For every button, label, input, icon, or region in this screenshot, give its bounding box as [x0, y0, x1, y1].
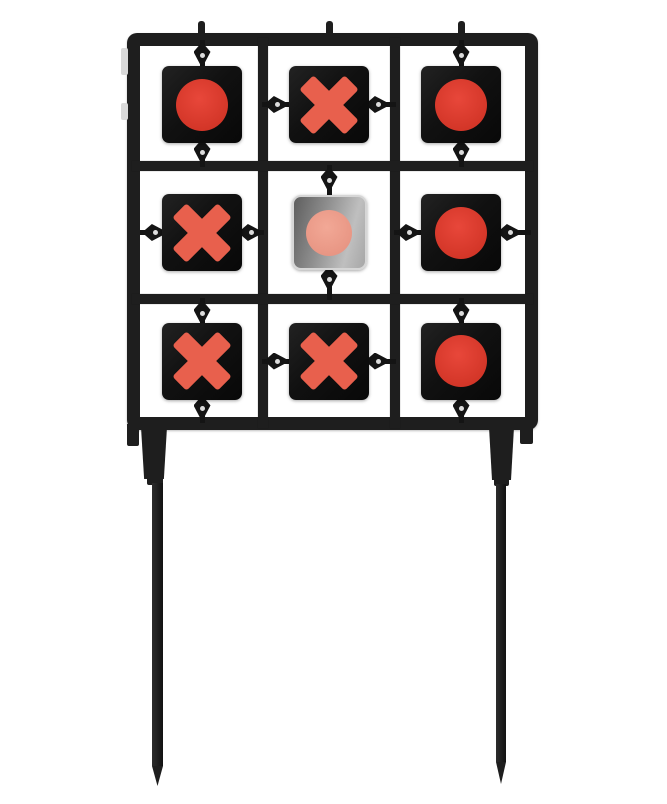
- grid-horizontal-bar-2: [132, 294, 533, 304]
- ground-stake-left: [152, 483, 163, 766]
- bracket-hole: [327, 277, 332, 282]
- mount-tab: [121, 103, 128, 120]
- bracket-hole: [275, 359, 280, 364]
- bracket-hole: [376, 102, 381, 107]
- bracket-hole: [327, 178, 332, 183]
- bracket-hole: [459, 406, 464, 411]
- bracket-hole: [200, 150, 205, 155]
- bracket-hole: [459, 150, 464, 155]
- bracket-hole: [459, 53, 464, 58]
- bracket-hole: [200, 311, 205, 316]
- leg-sleeve-left: [141, 427, 167, 479]
- o-symbol-r0c0: [176, 79, 228, 131]
- o-symbol-r1c1: [306, 210, 352, 256]
- bracket-hole: [275, 102, 280, 107]
- bracket-hole: [407, 230, 412, 235]
- bracket-hole: [508, 230, 513, 235]
- x-symbol-r0c1: [300, 76, 358, 134]
- x-symbol-r1c0: [173, 204, 231, 262]
- bracket-hole: [200, 53, 205, 58]
- mount-tab: [121, 48, 128, 75]
- ground-stake-right: [496, 484, 506, 762]
- product-photo: [0, 0, 667, 804]
- o-symbol-r0c2: [435, 79, 487, 131]
- frame-corner-stub-right: [520, 420, 533, 444]
- o-symbol-r1c2: [435, 207, 487, 259]
- top-rail-nub: [326, 21, 333, 35]
- bracket-hole: [200, 406, 205, 411]
- grid-horizontal-bar-1: [132, 161, 533, 171]
- bracket-hole: [249, 230, 254, 235]
- bracket-hole: [153, 230, 158, 235]
- o-symbol-r2c2: [435, 335, 487, 387]
- bracket-hole: [459, 311, 464, 316]
- stake-tip-right: [496, 762, 506, 784]
- top-rail-nub: [198, 21, 205, 35]
- frame-corner-stub-left: [127, 424, 139, 446]
- stake-tip-left: [152, 766, 163, 786]
- bracket-hole: [376, 359, 381, 364]
- x-symbol-r2c1: [300, 332, 358, 390]
- top-rail-nub: [458, 21, 465, 35]
- leg-sleeve-right: [489, 427, 514, 480]
- x-symbol-r2c0: [173, 332, 231, 390]
